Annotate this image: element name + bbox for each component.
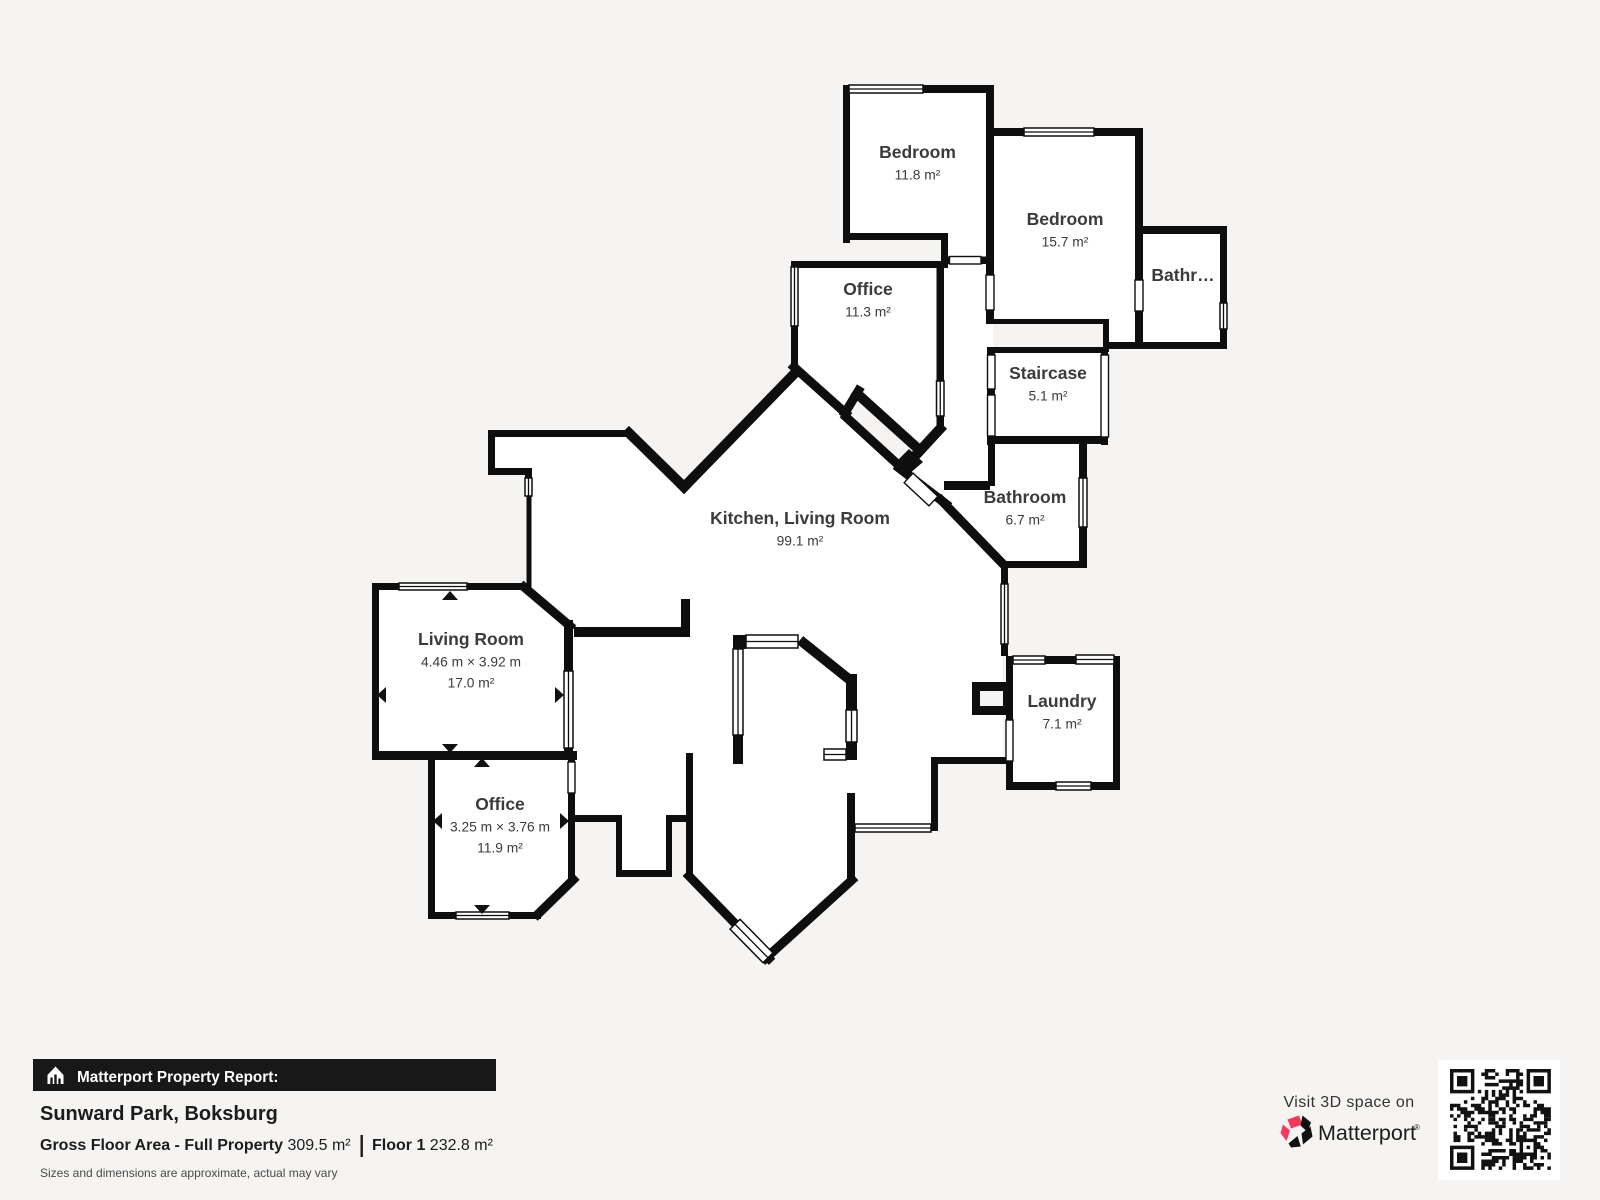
svg-text:99.1 m²: 99.1 m²	[777, 534, 824, 549]
svg-text:4.46 m × 3.92 m: 4.46 m × 3.92 m	[421, 655, 521, 670]
svg-text:6.7 m²: 6.7 m²	[1005, 513, 1045, 528]
svg-text:11.8 m²: 11.8 m²	[895, 168, 941, 183]
svg-text:®: ®	[1414, 1123, 1420, 1132]
svg-text:11.3 m²: 11.3 m²	[845, 305, 891, 320]
svg-text:Matterport Property Report:: Matterport Property Report:	[77, 1069, 278, 1086]
svg-text:5.1 m²: 5.1 m²	[1028, 389, 1068, 404]
svg-text:15.7 m²: 15.7 m²	[1042, 235, 1089, 250]
svg-text:Floor 1 232.8 m²: Floor 1 232.8 m²	[372, 1137, 494, 1154]
svg-text:Bedroom: Bedroom	[1027, 209, 1104, 229]
svg-text:7.1 m²: 7.1 m²	[1042, 717, 1082, 732]
svg-text:Sunward Park, Boksburg: Sunward Park, Boksburg	[40, 1103, 278, 1125]
svg-text:Kitchen, Living Room: Kitchen, Living Room	[710, 508, 890, 528]
svg-text:Matterport: Matterport	[1318, 1121, 1416, 1145]
svg-text:Bedroom: Bedroom	[879, 142, 956, 162]
svg-text:Laundry: Laundry	[1027, 691, 1096, 711]
svg-text:Office: Office	[475, 794, 525, 814]
svg-text:3.25 m × 3.76 m: 3.25 m × 3.76 m	[450, 820, 550, 835]
svg-text:Bathroom: Bathroom	[984, 487, 1067, 507]
svg-text:11.9 m²: 11.9 m²	[477, 841, 523, 856]
svg-text:Staircase: Staircase	[1009, 363, 1087, 383]
svg-text:Office: Office	[843, 279, 893, 299]
svg-text:Sizes and dimensions are appro: Sizes and dimensions are approximate, ac…	[40, 1166, 337, 1180]
svg-text:Gross Floor Area - Full Proper: Gross Floor Area - Full Property 309.5 m…	[40, 1137, 351, 1154]
svg-text:Living Room: Living Room	[418, 629, 524, 649]
svg-text:17.0 m²: 17.0 m²	[448, 676, 495, 691]
svg-text:Bathr…: Bathr…	[1151, 265, 1214, 285]
svg-text:Visit 3D space on: Visit 3D space on	[1283, 1094, 1414, 1111]
